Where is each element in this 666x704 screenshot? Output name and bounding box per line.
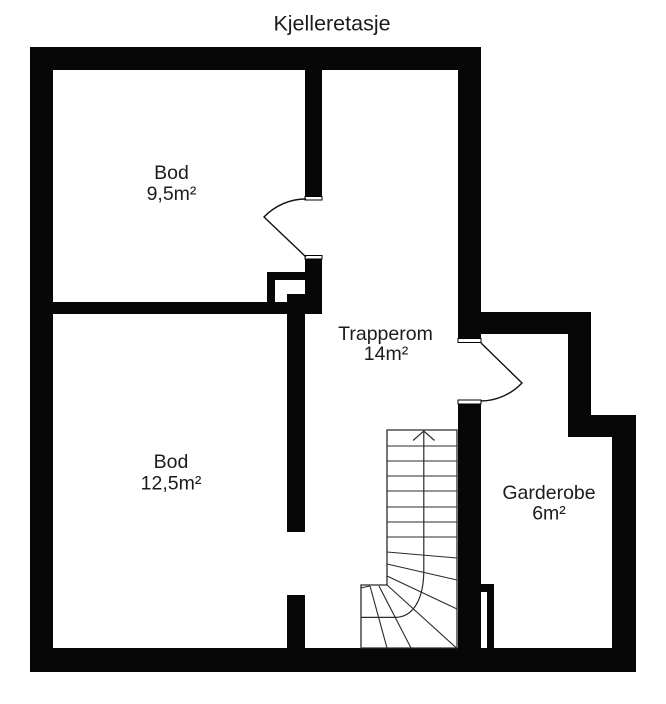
svg-text:Bod: Bod	[154, 451, 189, 473]
svg-text:Trapperom: Trapperom	[338, 323, 433, 345]
svg-text:12,5m²: 12,5m²	[141, 473, 202, 495]
svg-text:Bod: Bod	[154, 162, 189, 184]
svg-text:Garderobe: Garderobe	[502, 482, 595, 504]
svg-text:9,5m²: 9,5m²	[147, 183, 197, 205]
svg-text:14m²: 14m²	[364, 343, 409, 365]
svg-text:Kjelleretasje: Kjelleretasje	[273, 12, 390, 36]
svg-text:6m²: 6m²	[532, 503, 566, 525]
